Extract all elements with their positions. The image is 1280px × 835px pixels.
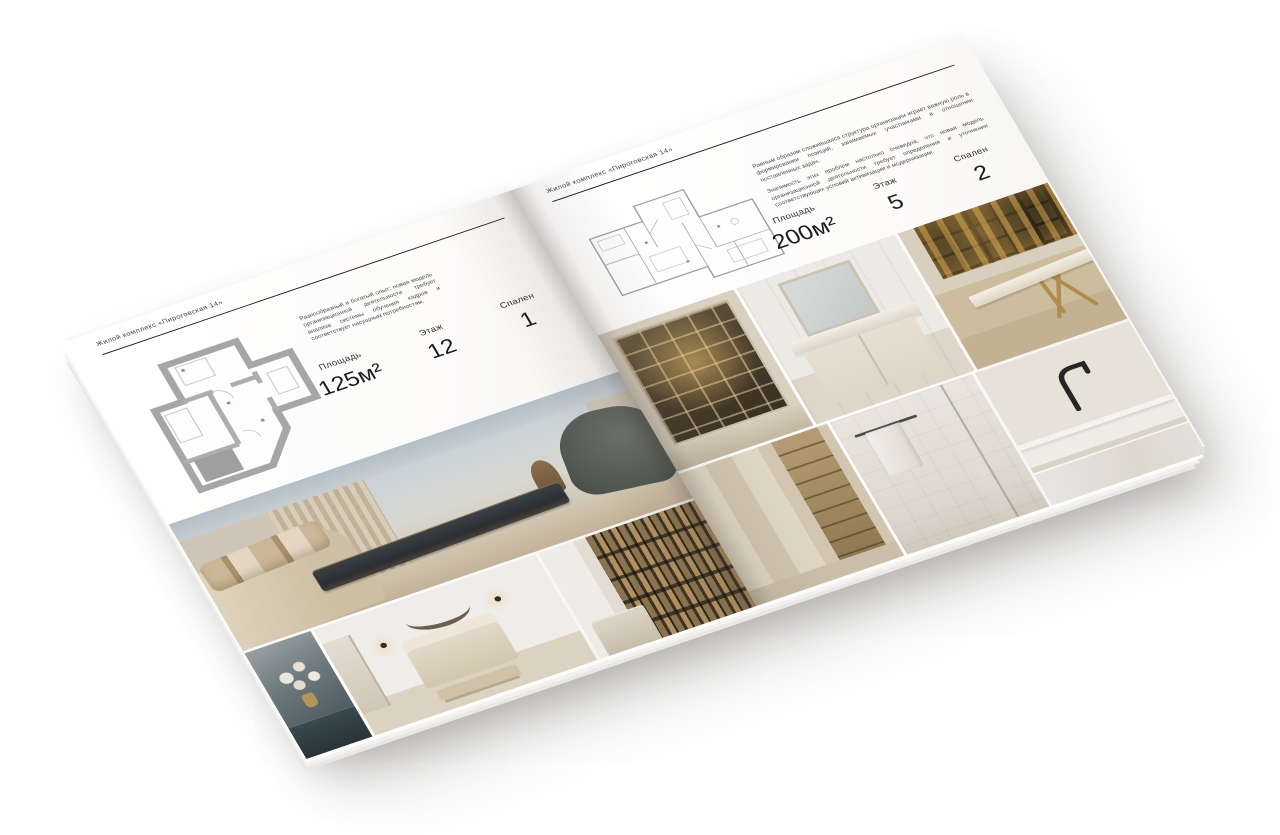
flowers-shape bbox=[264, 653, 334, 704]
wall-lamp-shape bbox=[379, 642, 388, 649]
spec-floor: Этаж 12 bbox=[403, 317, 475, 368]
floor-shape bbox=[748, 541, 904, 606]
spec-bedrooms: Спален 1 bbox=[489, 288, 561, 339]
magazine-spread: Жилой комплекс «Пироговская 14» Разнообр… bbox=[62, 37, 1206, 759]
faucet-icon bbox=[1043, 351, 1123, 414]
wall-lamp-shape bbox=[493, 595, 502, 602]
cabinet-shape bbox=[288, 705, 372, 759]
magazine-mockup-scene: Жилой комплекс «Пироговская 14» Разнообр… bbox=[0, 0, 1280, 835]
vase-shape bbox=[300, 692, 320, 709]
towel-shape bbox=[865, 422, 924, 477]
